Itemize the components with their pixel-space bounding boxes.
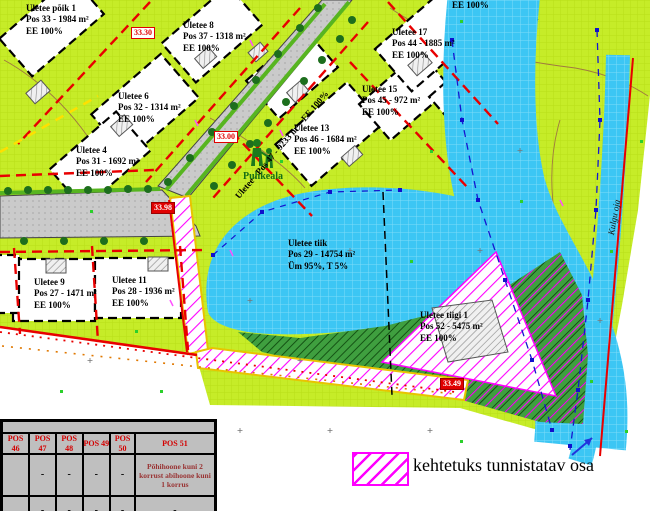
elevation-marker: 33.49	[440, 378, 464, 390]
pond-label: Uletee tiik Pos 29 - 14754 m² Üm 95%, T …	[288, 238, 355, 272]
plot-name: Uletee 8	[183, 20, 246, 31]
plot-area: Pos 33 - 1984 m²	[26, 14, 89, 25]
table-cell: -	[29, 454, 56, 496]
plot-label-pos46: Uletee 13 Pos 46 - 1684 m² EE 100%	[294, 123, 357, 157]
plot-use: EE 100%	[26, 26, 89, 37]
plot-name: Uletee 11	[112, 275, 175, 286]
table-header: POS 48	[56, 433, 83, 454]
pond-area: Pos 29 - 14754 m²	[288, 249, 355, 260]
plot-name: Uletee tiigi 1	[420, 310, 483, 321]
table-cell: -	[135, 496, 216, 511]
plot-name: Uletee põik 1	[26, 3, 89, 14]
plot-area: Pos 46 - 1684 m²	[294, 134, 357, 145]
table-header: POS 51	[135, 433, 216, 454]
table-cell: -	[83, 496, 111, 511]
table-header: POS 49	[83, 433, 111, 454]
elevation-marker: 33.98	[151, 202, 175, 214]
pos-table: POS 46 POS 47 POS 48 POS 49 POS 50 POS 5…	[0, 419, 217, 511]
plot-area: Pos 52 - 5475 m²	[420, 321, 483, 332]
plot-area: Pos 28 - 1936 m²	[112, 286, 175, 297]
plot-area: Pos 45 - 972 m²	[362, 95, 420, 106]
plot-area: Pos 44 - 1885 m²	[392, 38, 455, 49]
table-spacer-row	[2, 421, 216, 434]
plot-label-pos37: Uletee 8 Pos 37 - 1318 m² EE 100%	[183, 20, 246, 54]
table-cell	[2, 454, 30, 496]
elevation-marker: 33.00	[214, 131, 238, 143]
plot-name: Uletee 4	[76, 145, 139, 156]
plot-use: EE 100%	[362, 107, 420, 118]
table-cell	[2, 496, 30, 511]
plot-label-pos27: Uletee 9 Pos 27 - 1471 m² EE 100%	[34, 277, 97, 311]
table-cell: -	[110, 454, 135, 496]
plot-label-pos44: Uletee 17 Pos 44 - 1885 m² EE 100%	[392, 27, 455, 61]
plot-use: EE 100%	[183, 43, 246, 54]
table-header: POS 47	[29, 433, 56, 454]
plot-use: EE 100%	[118, 114, 181, 125]
table-cell: -	[110, 496, 135, 511]
plot-area: Pos 31 - 1692 m²	[76, 156, 139, 167]
plot-label-pos32: Uletee 6 Pos 32 - 1314 m² EE 100%	[118, 91, 181, 125]
plot-use: EE 100%	[76, 168, 139, 179]
table-cell: -	[56, 496, 83, 511]
table-header: POS 50	[110, 433, 135, 454]
plot-use: EE 100%	[294, 146, 357, 157]
legend-label: kehtetuks tunnistatav osa	[413, 455, 594, 476]
elevation-marker: 33.30	[131, 27, 155, 39]
table-cell-note: Põhihoone kuni 2 korrust abihoone kuni 1…	[135, 454, 216, 496]
pond-use: Üm 95%, T 5%	[288, 261, 355, 272]
plot-name: Uletee 15	[362, 84, 420, 95]
plot-label-pos45: Uletee 15 Pos 45 - 972 m² EE 100%	[362, 84, 420, 118]
table-header: POS 46	[2, 433, 30, 454]
table-cell: -	[83, 454, 111, 496]
plot-label-pos33: Uletee põik 1 Pos 33 - 1984 m² EE 100%	[26, 3, 89, 37]
invalid-part-hatch-swatch	[352, 452, 409, 486]
plot-use: EE 100%	[112, 298, 175, 309]
pond-name: Uletee tiik	[288, 238, 355, 249]
plot-use: EE 100%	[392, 50, 455, 61]
plot-label-pos31: Uletee 4 Pos 31 - 1692 m² EE 100%	[76, 145, 139, 179]
plot-name: Uletee 6	[118, 91, 181, 102]
table-cell: -	[56, 454, 83, 496]
plot-area: Pos 32 - 1314 m²	[118, 102, 181, 113]
recreation-area-label: Puhkeala	[243, 171, 283, 182]
partial-plot-label: EE 100%	[452, 0, 489, 11]
plot-label-pos52: Uletee tiigi 1 Pos 52 - 5475 m² EE 100%	[420, 310, 483, 344]
plot-name: Uletee 9	[34, 277, 97, 288]
table-cell: -	[29, 496, 56, 511]
plot-name: Uletee 17	[392, 27, 455, 38]
plot-area: Pos 37 - 1318 m²	[183, 31, 246, 42]
plot-label-pos28: Uletee 11 Pos 28 - 1936 m² EE 100%	[112, 275, 175, 309]
plot-use: EE 100%	[34, 300, 97, 311]
plot-area: Pos 27 - 1471 m²	[34, 288, 97, 299]
detail-plan-map: Uletee põik 1 Pos 33 - 1984 m² EE 100% U…	[0, 0, 650, 511]
plot-use: EE 100%	[420, 333, 483, 344]
